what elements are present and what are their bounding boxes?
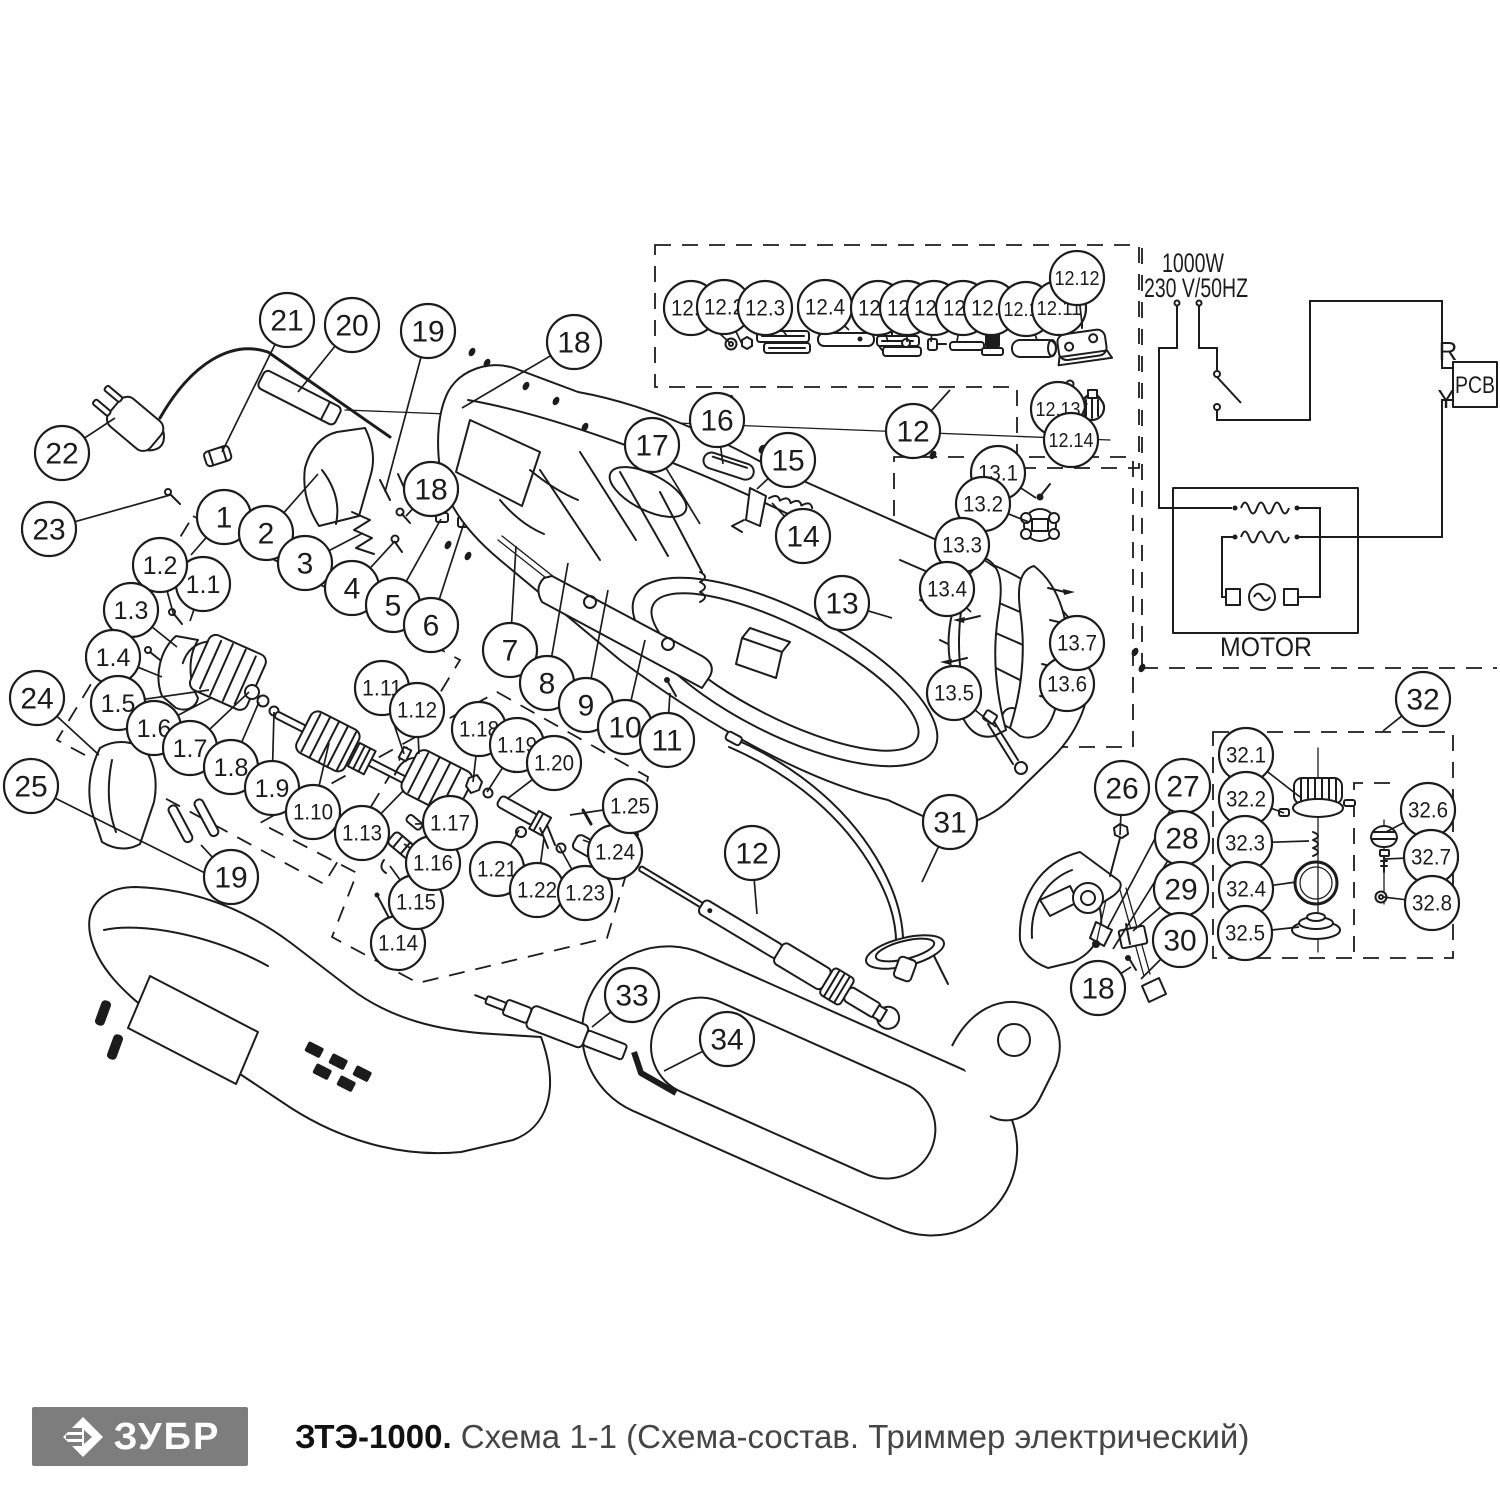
svg-text:12: 12 — [735, 838, 768, 871]
screw-1-2 — [169, 609, 182, 624]
spring-32-3 — [1313, 832, 1318, 856]
pins-19 — [167, 798, 220, 844]
svg-text:32.8: 32.8 — [1412, 891, 1452, 916]
spool-cap-32-1 — [1293, 778, 1355, 817]
svg-text:10: 10 — [608, 712, 641, 745]
cord-sleeve-20 — [257, 369, 343, 426]
svg-text:31: 31 — [933, 807, 966, 840]
pin-1-17 — [405, 814, 423, 831]
svg-text:17: 17 — [635, 430, 668, 463]
brand-logo: ЗУБР — [32, 1407, 248, 1466]
svg-text:12.3: 12.3 — [745, 296, 785, 321]
svg-text:9: 9 — [578, 690, 595, 723]
svg-text:18: 18 — [1081, 973, 1114, 1006]
washer-30 — [1142, 978, 1166, 1002]
svg-text:13.3: 13.3 — [942, 533, 982, 558]
field-coil-2 — [1241, 532, 1289, 543]
spacer-12-8 — [950, 342, 984, 350]
spool-group-32 — [1279, 748, 1397, 952]
svg-text:7: 7 — [502, 635, 519, 668]
svg-text:34: 34 — [710, 1024, 743, 1057]
brush-left — [1226, 589, 1240, 605]
callout-19-47: 19 — [201, 845, 258, 904]
svg-text:1.24: 1.24 — [595, 840, 635, 865]
callout-31-74: 31 — [922, 795, 977, 882]
svg-text:11: 11 — [651, 725, 682, 758]
clip-1-15 — [381, 860, 386, 873]
svg-text:12.12: 12.12 — [1055, 268, 1100, 290]
callout-1-12-59: 1.12 — [390, 683, 444, 754]
rear-hole — [998, 1024, 1030, 1056]
svg-text:21: 21 — [270, 305, 303, 338]
callout-32-3-86: 32.3 — [1218, 816, 1309, 870]
svg-text:1.4: 1.4 — [96, 644, 131, 672]
svg-text:1.9: 1.9 — [255, 775, 290, 803]
svg-text:19: 19 — [411, 316, 444, 349]
model-number: ЗТЭ-1000. — [295, 1418, 452, 1455]
tube-12-10 — [1012, 340, 1056, 357]
svg-text:12.4: 12.4 — [805, 295, 845, 320]
brand-name: ЗУБР — [114, 1418, 221, 1456]
svg-text:6: 6 — [423, 610, 440, 643]
pin-1-14 — [375, 893, 389, 917]
svg-text:13: 13 — [825, 588, 858, 621]
svg-text:1.23: 1.23 — [565, 881, 605, 906]
callout-1-25-72: 1.25 — [570, 779, 657, 833]
svg-text:12.14: 12.14 — [1049, 430, 1094, 452]
wire-right — [1199, 306, 1217, 370]
bolt-13-1 — [1037, 484, 1051, 501]
switch-blade — [1217, 377, 1241, 403]
svg-text:1: 1 — [216, 502, 233, 535]
callout-12-4-26: 12.4 — [798, 280, 852, 334]
callout-24-45: 24 — [10, 671, 99, 755]
callout-12-73: 12 — [725, 826, 779, 914]
svg-text:3: 3 — [297, 548, 314, 581]
callout-13-4-41: 13.4 — [920, 562, 974, 616]
svg-text:23: 23 — [32, 514, 65, 547]
washer-1-7 — [245, 685, 259, 699]
svg-text:1.14: 1.14 — [378, 931, 418, 956]
callout-15-20: 15 — [757, 433, 815, 489]
callout-18-12: 18 — [404, 462, 458, 516]
diagram-caption: ЗТЭ-1000. Схема 1-1 (Схема-состав. Тримм… — [295, 1418, 1249, 1456]
ring-32-4 — [1295, 862, 1337, 904]
svg-text:32.3: 32.3 — [1225, 831, 1265, 856]
cable-clamp-21 — [203, 445, 232, 467]
svg-text:1.25: 1.25 — [610, 794, 650, 819]
svg-text:29: 29 — [1164, 874, 1197, 907]
callout-32-83: 32 — [1383, 672, 1450, 731]
caption-text: Схема 1-1 (Схема-состав. Триммер электри… — [461, 1418, 1250, 1455]
callout-13-7-44: 13.7 — [1050, 616, 1104, 670]
svg-text:20: 20 — [335, 310, 368, 343]
callout-1-13-60: 1.13 — [335, 790, 404, 860]
svg-text:1.8: 1.8 — [214, 754, 249, 782]
svg-text:2: 2 — [258, 518, 275, 551]
callout-22-0: 22 — [35, 418, 115, 480]
svg-text:1.3: 1.3 — [114, 597, 149, 625]
svg-text:28: 28 — [1165, 823, 1198, 856]
callout-12-3-25: 12.3 — [738, 281, 792, 336]
svg-text:1.13: 1.13 — [342, 821, 382, 846]
svg-text:32: 32 — [1406, 684, 1439, 717]
svg-text:1.2: 1.2 — [143, 552, 178, 580]
svg-text:1.1: 1.1 — [186, 571, 221, 599]
wire-left — [1159, 306, 1232, 508]
svg-text:24: 24 — [20, 683, 53, 716]
callout-12-22: 12 — [886, 390, 950, 458]
svg-text:1.20: 1.20 — [534, 751, 574, 776]
svg-text:13.2: 13.2 — [963, 492, 1003, 517]
svg-text:13.6: 13.6 — [1047, 672, 1087, 697]
svg-text:1.7: 1.7 — [173, 735, 208, 763]
svg-text:32.2: 32.2 — [1226, 787, 1266, 812]
svg-text:25: 25 — [14, 771, 47, 804]
svg-text:16: 16 — [700, 405, 733, 438]
svg-text:32.4: 32.4 — [1226, 877, 1266, 902]
screw-1-3 — [145, 647, 160, 660]
pcb-label: PCB — [1455, 372, 1495, 399]
svg-text:22: 22 — [45, 438, 78, 471]
callout-32-8-91: 32.8 — [1383, 876, 1459, 930]
svg-text:13.4: 13.4 — [927, 577, 967, 602]
svg-text:1.22: 1.22 — [517, 878, 557, 903]
exploded-parts-diagram: 1000W 230 V/50HZ R PCB Y MOTOR 222120191… — [0, 0, 1500, 1500]
svg-text:32.6: 32.6 — [1408, 798, 1448, 823]
svg-text:1.17: 1.17 — [430, 811, 470, 836]
schematic-page: 1000W 230 V/50HZ R PCB Y MOTOR 222120191… — [0, 0, 1500, 1500]
svg-text:33: 33 — [615, 980, 648, 1013]
svg-text:18: 18 — [414, 474, 447, 507]
callout-32-5-88: 32.5 — [1218, 906, 1299, 960]
svg-text:5: 5 — [385, 590, 402, 623]
svg-text:1.16: 1.16 — [413, 851, 453, 876]
svg-text:26: 26 — [1105, 773, 1138, 806]
motor-label: MOTOR — [1220, 632, 1312, 662]
svg-text:30: 30 — [1163, 925, 1196, 958]
svg-text:12: 12 — [896, 416, 929, 449]
clamp-13-2 — [1021, 509, 1059, 541]
field-coil-1 — [1241, 503, 1289, 514]
supply-rating: 230 V/50HZ — [1144, 273, 1248, 303]
callout-30-81: 30 — [1141, 913, 1207, 979]
brush-right — [1284, 589, 1298, 605]
wiring-box — [1142, 248, 1497, 668]
svg-text:4: 4 — [344, 573, 361, 606]
handle-half-12-5 — [877, 336, 921, 356]
power-plug — [88, 381, 172, 460]
spool-32-5 — [1292, 913, 1340, 939]
svg-text:1.21: 1.21 — [477, 857, 517, 882]
callout-18-82: 18 — [1071, 961, 1131, 1015]
svg-text:19: 19 — [214, 862, 247, 895]
wiring-diagram: 1000W 230 V/50HZ R PCB Y MOTOR — [1144, 248, 1497, 662]
svg-text:1.12: 1.12 — [397, 698, 437, 723]
svg-text:8: 8 — [539, 668, 556, 701]
footer: ЗУБР ЗТЭ-1000. Схема 1-1 (Схема-состав. … — [0, 1398, 1500, 1500]
svg-text:13.5: 13.5 — [934, 681, 974, 706]
svg-text:14: 14 — [786, 521, 819, 554]
washer-12-6 — [902, 339, 910, 347]
svg-text:32.7: 32.7 — [1411, 845, 1451, 870]
washer-1-8 — [258, 696, 269, 707]
brand-arrow-icon — [60, 1414, 106, 1460]
svg-text:32.1: 32.1 — [1226, 743, 1266, 768]
bolt-32-7 — [1380, 850, 1389, 872]
svg-text:1.15: 1.15 — [396, 890, 436, 915]
svg-text:1.10: 1.10 — [293, 800, 333, 825]
callout-32-6-89: 32.6 — [1386, 783, 1455, 837]
svg-text:18: 18 — [557, 327, 590, 360]
svg-text:32.5: 32.5 — [1225, 921, 1265, 946]
wire-to-pcb — [1217, 301, 1442, 420]
svg-text:27: 27 — [1166, 771, 1199, 804]
svg-text:15: 15 — [771, 445, 804, 478]
svg-text:13.7: 13.7 — [1057, 631, 1097, 656]
